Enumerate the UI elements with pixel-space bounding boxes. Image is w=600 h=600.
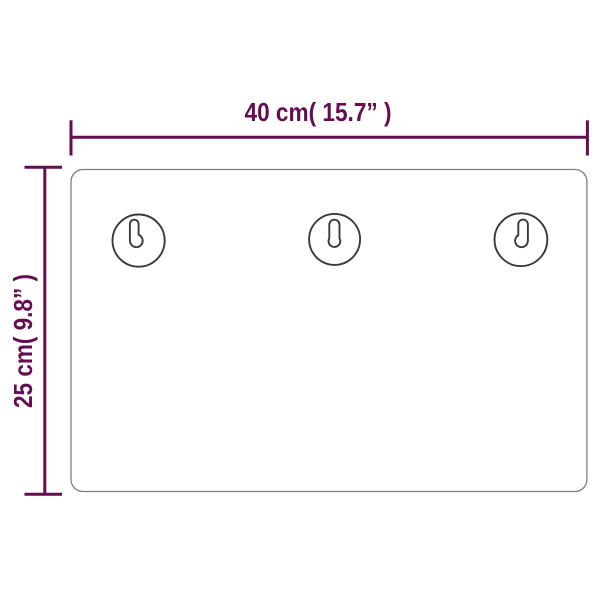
svg-text:40 cm( 15.7” ): 40 cm( 15.7” )	[245, 97, 392, 127]
svg-text:25 cm( 9.8” ): 25 cm( 9.8” )	[8, 274, 38, 408]
